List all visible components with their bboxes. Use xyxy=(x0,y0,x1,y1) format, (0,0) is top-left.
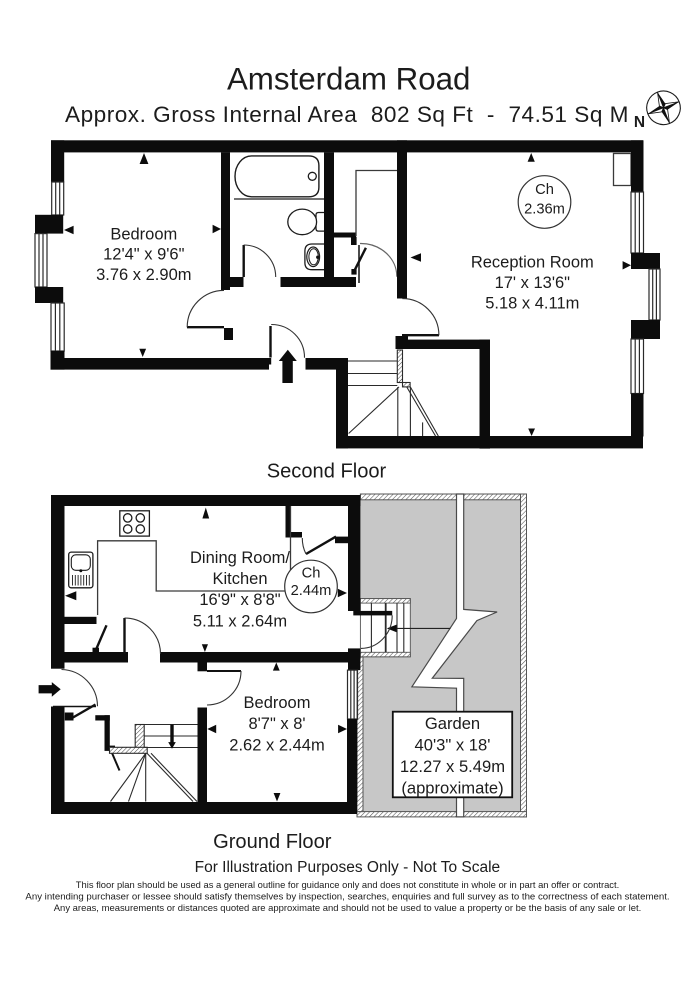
svg-text:12'4" x 9'6": 12'4" x 9'6" xyxy=(103,245,184,263)
svg-text:Ch: Ch xyxy=(302,565,321,581)
svg-text:Kitchen: Kitchen xyxy=(212,570,267,588)
svg-text:N: N xyxy=(634,114,645,131)
svg-text:Approx. Gross Internal Area 8: Approx. Gross Internal Area 802 Sq Ft - … xyxy=(65,102,629,127)
svg-text:Ch: Ch xyxy=(535,182,554,198)
svg-text:40'3" x 18': 40'3" x 18' xyxy=(415,736,491,755)
svg-text:(approximate): (approximate) xyxy=(401,779,503,798)
svg-text:17' x 13'6": 17' x 13'6" xyxy=(495,274,571,292)
svg-text:Any areas, measurements or dis: Any areas, measurements or distances quo… xyxy=(54,903,642,914)
svg-text:12.27 x 5.49m: 12.27 x 5.49m xyxy=(400,757,505,776)
svg-text:3.76 x 2.90m: 3.76 x 2.90m xyxy=(96,266,191,284)
svg-text:2.44m: 2.44m xyxy=(291,583,332,599)
svg-text:Any intending purchaser or les: Any intending purchaser or lessee should… xyxy=(25,892,669,903)
svg-text:2.36m: 2.36m xyxy=(524,202,565,218)
svg-text:5.11 x 2.64m: 5.11 x 2.64m xyxy=(193,612,287,630)
svg-text:Ground Floor: Ground Floor xyxy=(213,831,332,853)
svg-text:5.18 x 4.11m: 5.18 x 4.11m xyxy=(485,294,579,312)
svg-text:For Illustration Purposes Only: For Illustration Purposes Only - Not To … xyxy=(195,859,501,876)
svg-text:Bedroom: Bedroom xyxy=(244,694,311,712)
svg-text:8'7" x 8': 8'7" x 8' xyxy=(248,715,305,733)
svg-text:Second Floor: Second Floor xyxy=(267,461,387,483)
svg-text:Bedroom: Bedroom xyxy=(110,226,177,244)
svg-text:Reception Room: Reception Room xyxy=(471,253,594,271)
svg-text:16'9" x 8'8": 16'9" x 8'8" xyxy=(199,591,280,609)
svg-text:2.62 x 2.44m: 2.62 x 2.44m xyxy=(229,736,324,754)
svg-text:Garden: Garden xyxy=(425,714,480,733)
svg-text:Dining Room/: Dining Room/ xyxy=(190,549,290,567)
svg-text:This floor plan should be used: This floor plan should be used as a gene… xyxy=(76,879,619,890)
svg-text:Amsterdam Road: Amsterdam Road xyxy=(227,62,471,97)
